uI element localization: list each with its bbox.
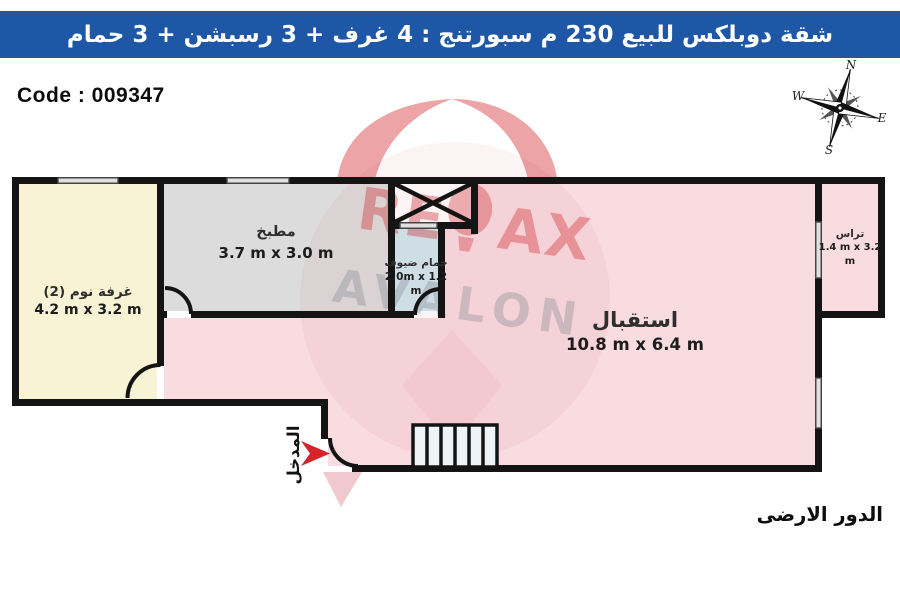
floor-plan-page: شقة دوبلكس للبيع 230 م سبورتنج : 4 غرف +… bbox=[0, 0, 900, 599]
wall-terrace-bottom bbox=[815, 311, 885, 318]
watermark-text-ax: AX bbox=[494, 194, 596, 274]
compass-e-label: E bbox=[877, 111, 887, 125]
wall-bottom-upper bbox=[12, 399, 328, 406]
compass-n-label: N bbox=[845, 58, 857, 72]
wall-left bbox=[12, 177, 19, 406]
compass-rose-icon: N E S W bbox=[788, 56, 892, 160]
room-dims: 1.4 m x 3.2 m bbox=[815, 241, 885, 268]
room-name: مطبخ bbox=[165, 223, 387, 243]
room-name: غرفة نوم (2) bbox=[20, 283, 156, 301]
wall-kitchen-bottom-b bbox=[191, 311, 414, 318]
room-label-terrace: تراس 1.4 m x 3.2 m bbox=[815, 227, 885, 268]
room-label-bedroom2: غرفة نوم (2) 4.2 m x 3.2 m bbox=[20, 283, 156, 320]
room-dims: 2.0m x 1.2 m bbox=[378, 270, 454, 298]
room-label-reception: استقبال 10.8 m x 6.4 m bbox=[518, 306, 752, 357]
wall-bedroom-right bbox=[157, 177, 164, 366]
compass-w-label: W bbox=[792, 89, 806, 103]
room-label-kitchen: مطبخ 3.7 m x 3.0 m bbox=[165, 223, 387, 263]
window-kitchen bbox=[227, 178, 289, 183]
room-dims: 3.7 m x 3.0 m bbox=[165, 243, 387, 263]
room-dims: 10.8 m x 6.4 m bbox=[518, 334, 752, 356]
room-label-guest-bath: حمام ضيوف 2.0m x 1.2 m bbox=[378, 256, 454, 299]
window-bedroom bbox=[58, 178, 118, 183]
watermark-balloon-tip bbox=[323, 472, 362, 507]
entrance-label: المدخل bbox=[266, 421, 320, 489]
room-name: استقبال bbox=[518, 306, 752, 334]
wall-top bbox=[12, 177, 885, 184]
room-dims: 4.2 m x 3.2 m bbox=[20, 301, 156, 320]
wall-kitchen-bottom-a bbox=[157, 311, 167, 318]
floor-name-label: الدور الارضى bbox=[757, 503, 883, 526]
window-bathroom bbox=[400, 223, 437, 228]
wall-entry-step bbox=[321, 399, 328, 439]
compass-s-label: S bbox=[825, 143, 833, 157]
room-name: حمام ضيوف bbox=[378, 256, 454, 270]
room-name: تراس bbox=[815, 227, 885, 241]
stairs-icon bbox=[413, 425, 497, 467]
window-reception bbox=[816, 378, 821, 428]
